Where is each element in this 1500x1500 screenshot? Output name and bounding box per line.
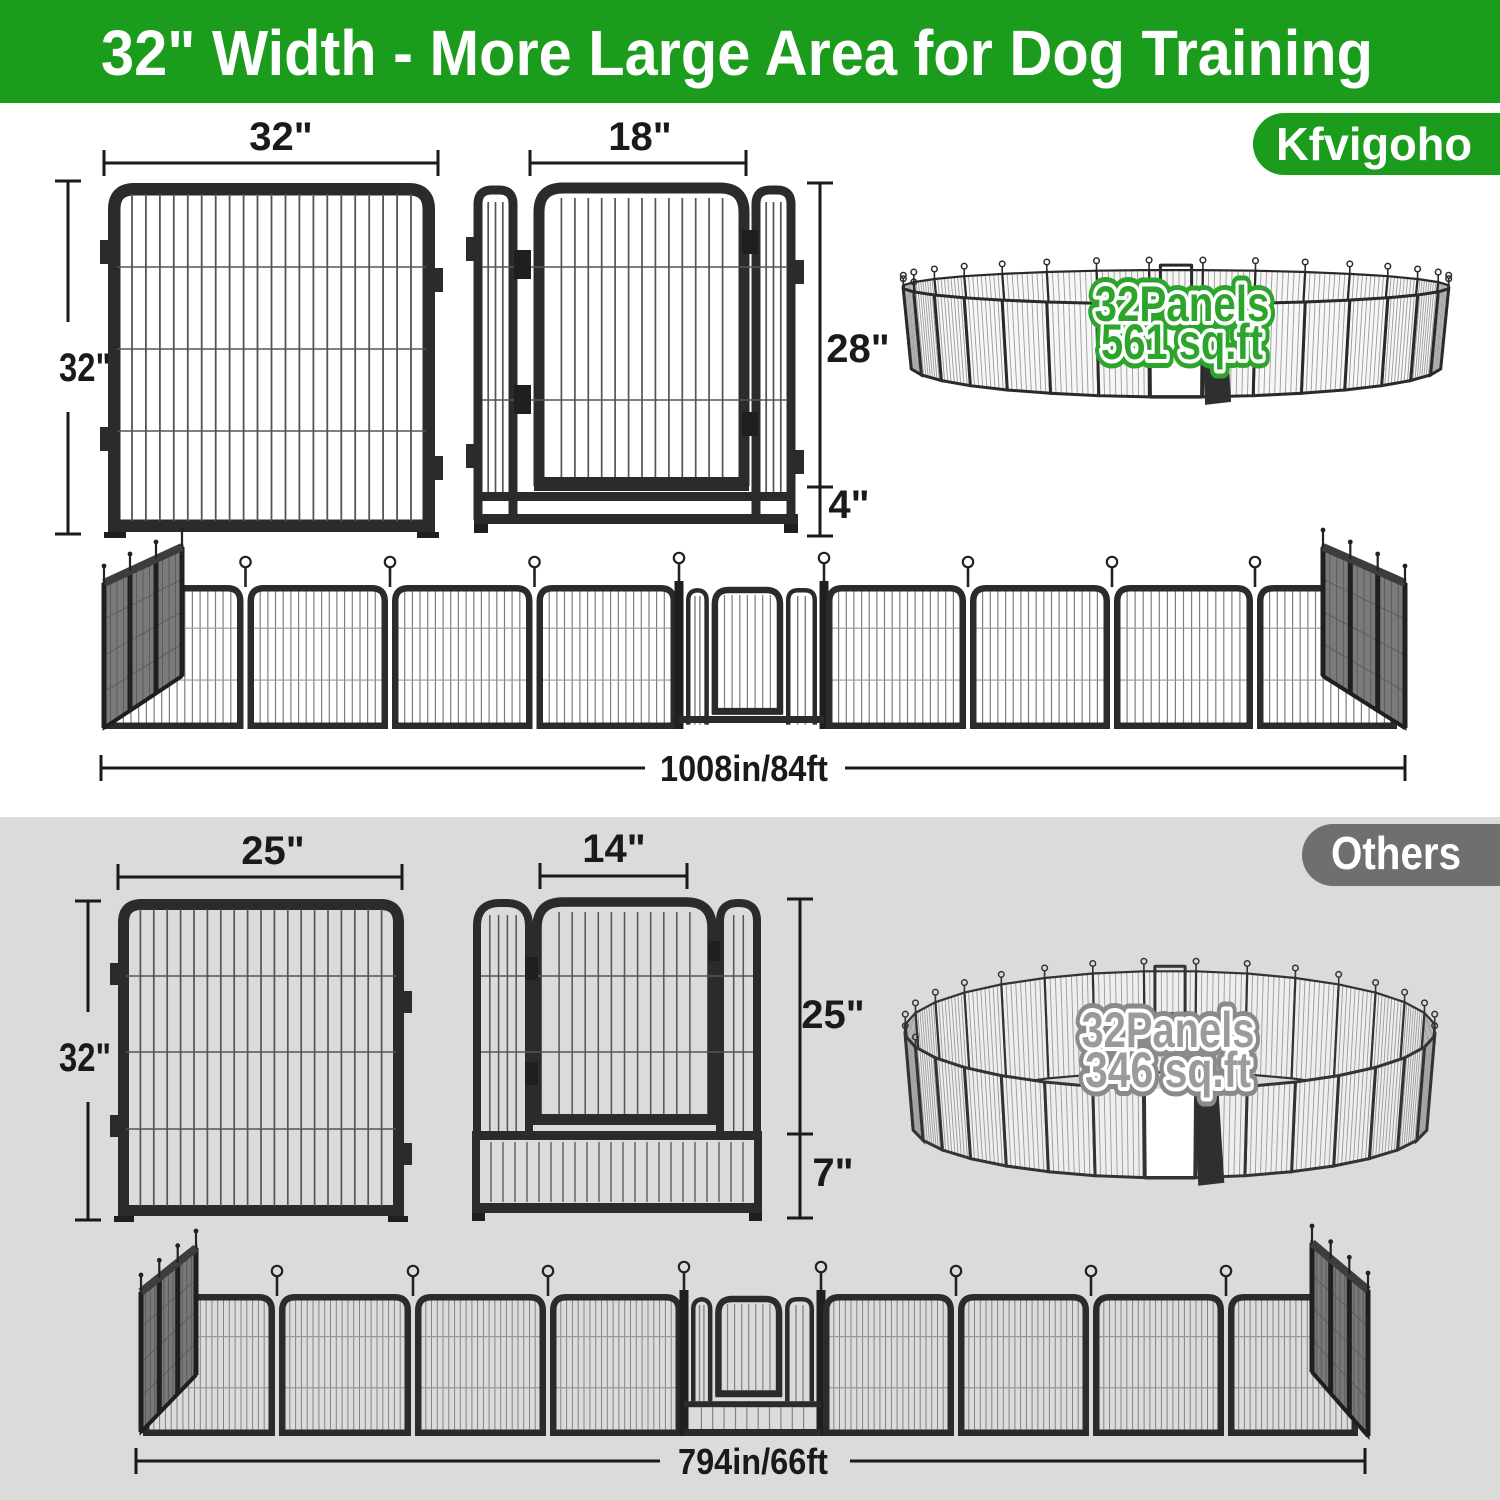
svg-text:32": 32" (59, 1036, 111, 1080)
svg-text:Others: Others (1331, 827, 1461, 879)
svg-text:14": 14" (582, 827, 645, 871)
svg-text:7": 7" (812, 1151, 853, 1195)
svg-text:25": 25" (801, 993, 864, 1037)
svg-text:32": 32" (59, 346, 111, 390)
svg-text:346 sq.ft: 346 sq.ft (1085, 1042, 1251, 1098)
svg-text:18": 18" (608, 115, 671, 159)
svg-text:28": 28" (826, 327, 889, 371)
svg-text:32": 32" (249, 115, 312, 159)
svg-text:1008in/84ft: 1008in/84ft (660, 748, 828, 789)
svg-text:Kfvigoho: Kfvigoho (1276, 118, 1472, 170)
svg-text:794in/66ft: 794in/66ft (678, 1441, 828, 1482)
svg-text:561 sq.ft: 561 sq.ft (1101, 314, 1263, 370)
svg-text:32" Width - More Large Area fo: 32" Width - More Large Area for Dog Trai… (101, 17, 1373, 89)
svg-text:4": 4" (828, 483, 869, 527)
svg-text:25": 25" (241, 829, 304, 873)
